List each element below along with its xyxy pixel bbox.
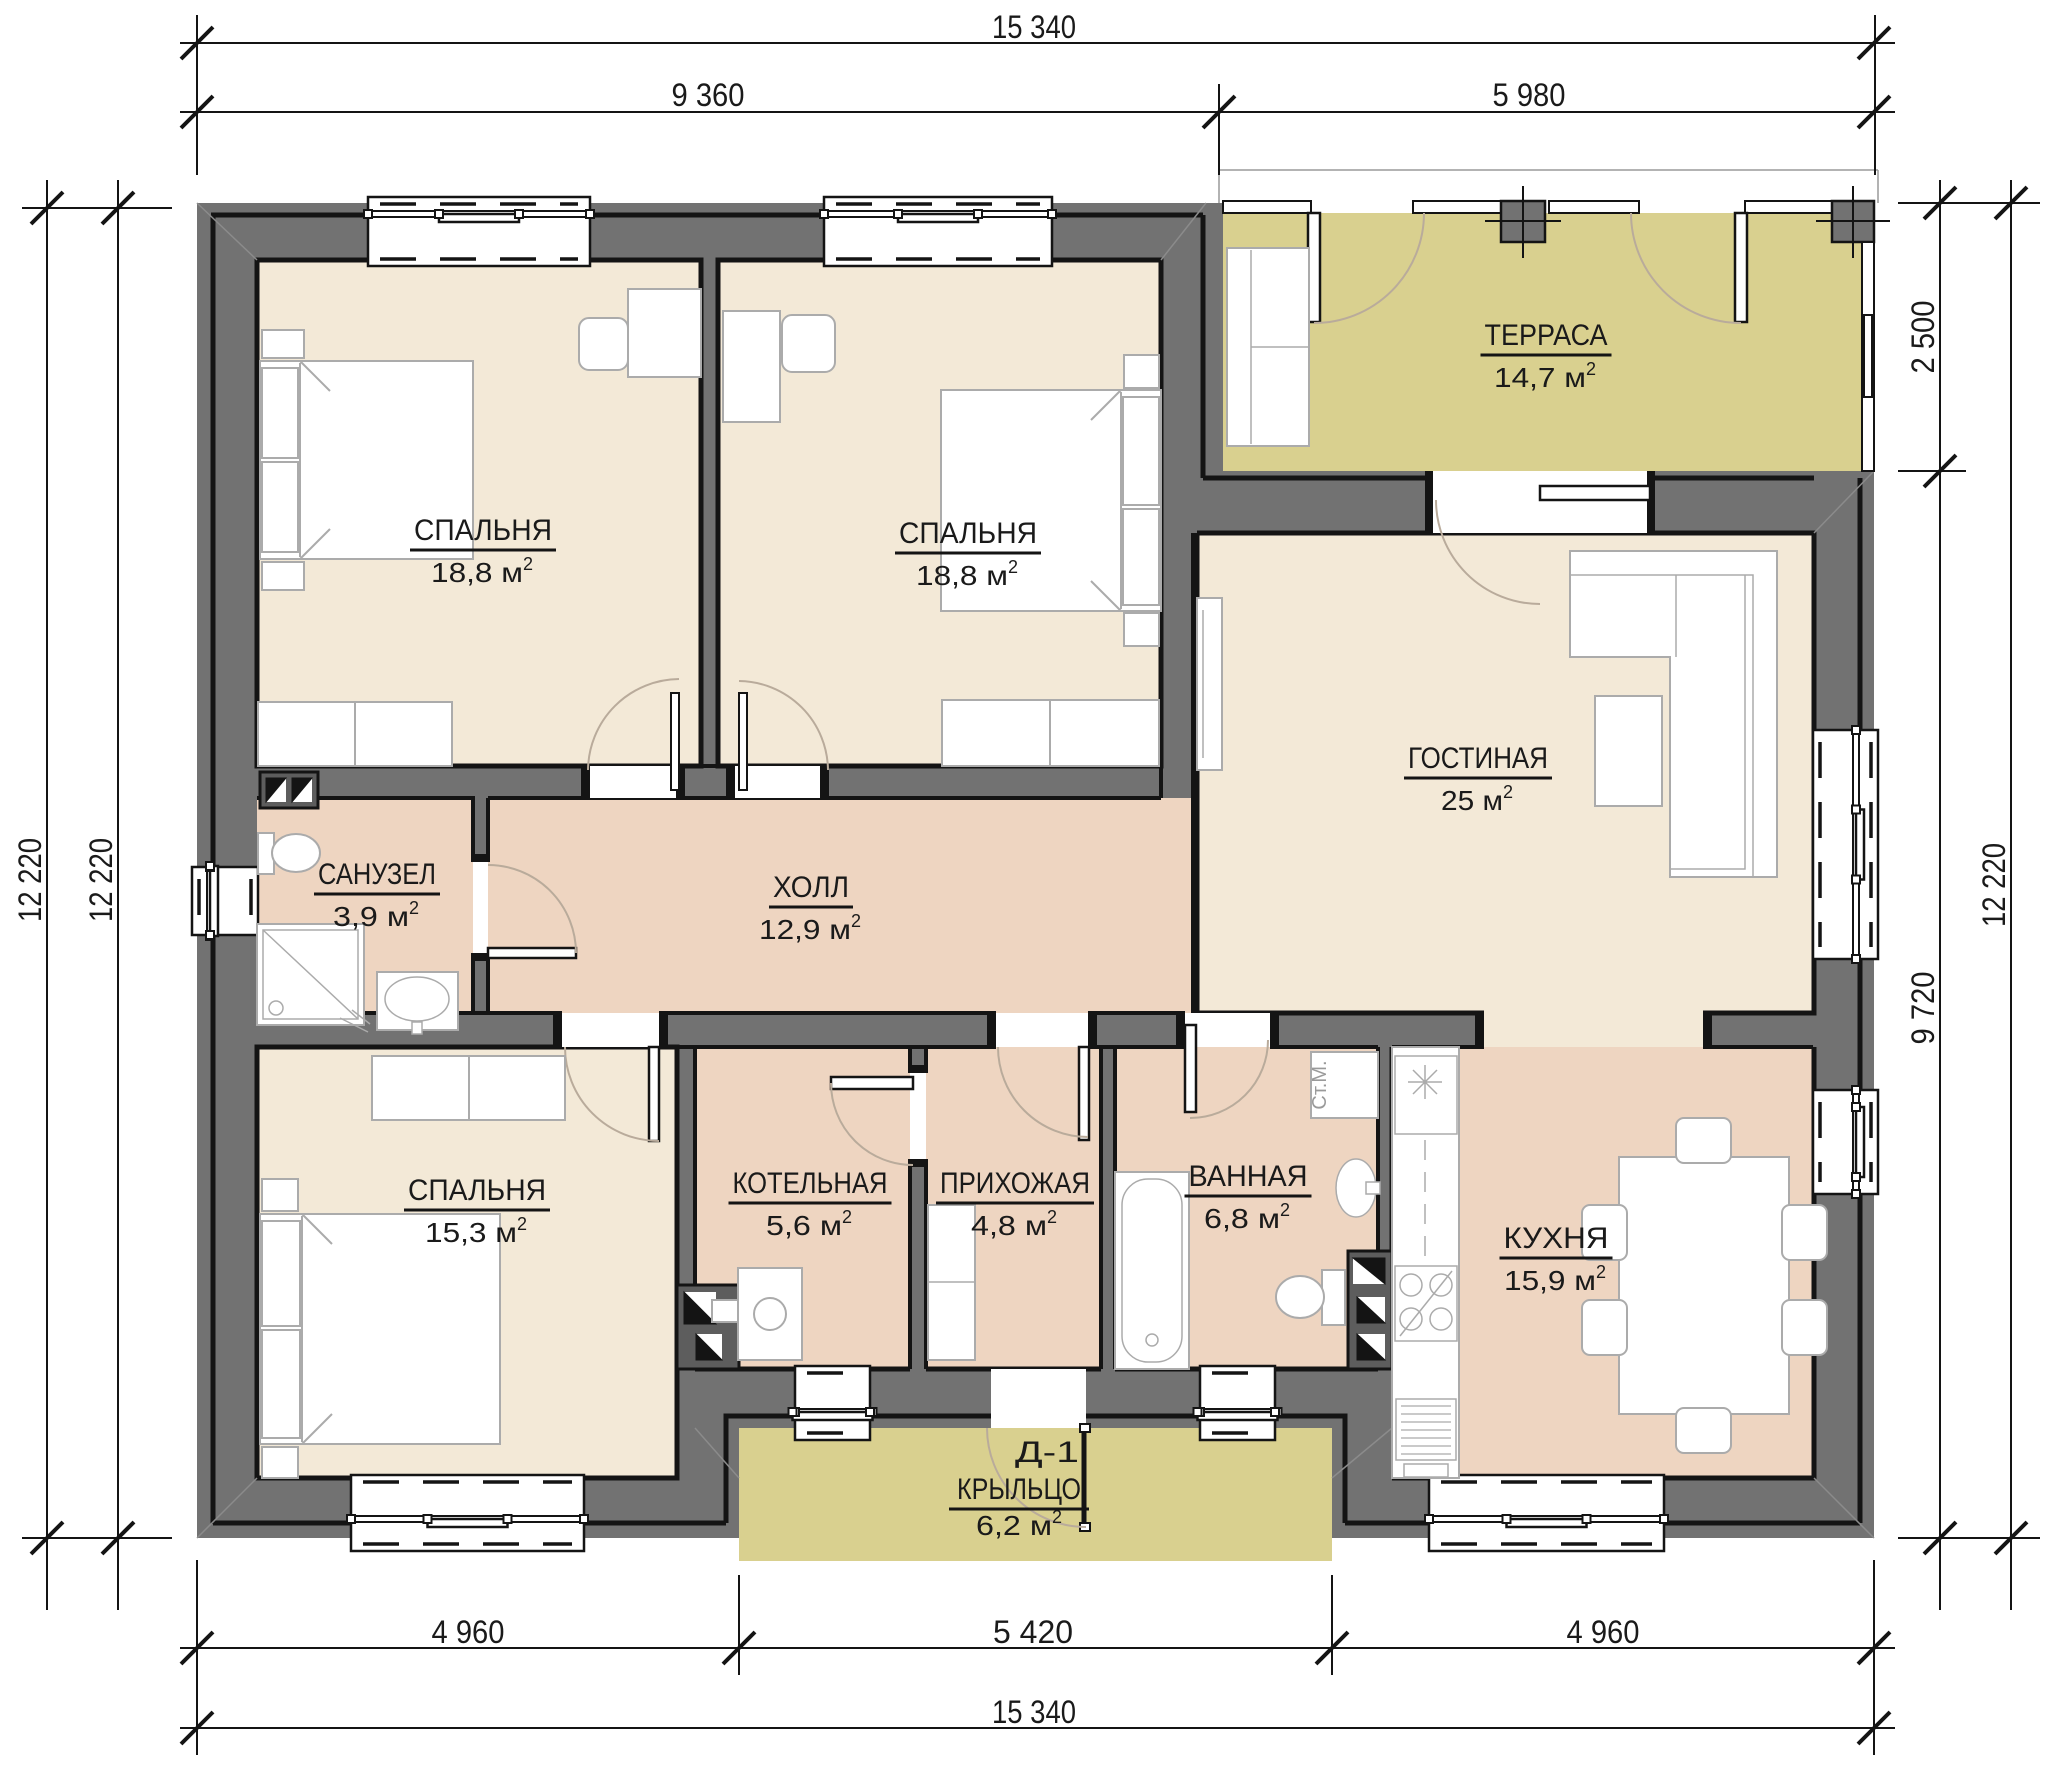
- svg-text:ГОСТИНАЯ: ГОСТИНАЯ: [1408, 742, 1548, 775]
- svg-text:6,8 м: 6,8 м: [1204, 1203, 1280, 1234]
- svg-text:12 220: 12 220: [1976, 843, 2012, 927]
- svg-text:ПРИХОЖАЯ: ПРИХОЖАЯ: [940, 1167, 1090, 1200]
- svg-text:КОТЕЛЬНАЯ: КОТЕЛЬНАЯ: [733, 1167, 888, 1200]
- svg-text:2: 2: [1047, 1207, 1057, 1227]
- svg-text:КРЫЛЬЦО: КРЫЛЬЦО: [957, 1473, 1081, 1506]
- svg-text:18,8 м: 18,8 м: [431, 557, 523, 588]
- svg-text:САНУЗЕЛ: САНУЗЕЛ: [318, 858, 436, 891]
- svg-text:СПАЛЬНЯ: СПАЛЬНЯ: [414, 514, 552, 547]
- svg-text:9 360: 9 360: [672, 77, 745, 113]
- svg-text:5 980: 5 980: [1493, 77, 1566, 113]
- svg-text:15 340: 15 340: [992, 9, 1076, 45]
- svg-text:2: 2: [851, 911, 861, 931]
- svg-text:СПАЛЬНЯ: СПАЛЬНЯ: [899, 517, 1037, 550]
- svg-text:4 960: 4 960: [1567, 1614, 1640, 1650]
- svg-text:2: 2: [1008, 557, 1018, 577]
- svg-text:Ст.М.: Ст.М.: [1309, 1060, 1331, 1109]
- svg-text:2: 2: [842, 1207, 852, 1227]
- svg-text:18,8 м: 18,8 м: [916, 560, 1008, 591]
- svg-text:15,3 м: 15,3 м: [425, 1217, 517, 1248]
- svg-text:12 220: 12 220: [12, 838, 48, 922]
- svg-text:9 720: 9 720: [1905, 972, 1941, 1045]
- svg-text:Д-1: Д-1: [1015, 1436, 1079, 1469]
- svg-text:6,2 м: 6,2 м: [976, 1510, 1052, 1541]
- svg-text:СПАЛЬНЯ: СПАЛЬНЯ: [408, 1174, 546, 1207]
- svg-text:2: 2: [517, 1214, 527, 1234]
- svg-text:ХОЛЛ: ХОЛЛ: [773, 871, 849, 904]
- svg-text:2: 2: [1503, 782, 1513, 802]
- svg-text:12 220: 12 220: [83, 838, 119, 922]
- svg-text:25 м: 25 м: [1441, 785, 1503, 816]
- svg-text:12,9 м: 12,9 м: [759, 914, 851, 945]
- svg-text:2: 2: [523, 554, 533, 574]
- svg-text:2: 2: [1586, 359, 1596, 379]
- svg-text:2 500: 2 500: [1905, 301, 1941, 374]
- svg-text:4 960: 4 960: [432, 1614, 505, 1650]
- svg-text:ВАННАЯ: ВАННАЯ: [1189, 1160, 1308, 1193]
- svg-text:2: 2: [1596, 1262, 1606, 1282]
- svg-text:14,7 м: 14,7 м: [1494, 362, 1586, 393]
- svg-text:3,9 м: 3,9 м: [333, 901, 409, 932]
- svg-text:2: 2: [1280, 1200, 1290, 1220]
- svg-text:5 420: 5 420: [993, 1614, 1073, 1650]
- svg-text:15 340: 15 340: [992, 1694, 1076, 1730]
- svg-text:2: 2: [1052, 1507, 1062, 1527]
- svg-text:4,8 м: 4,8 м: [971, 1210, 1047, 1241]
- svg-text:КУХНЯ: КУХНЯ: [1504, 1222, 1609, 1255]
- svg-text:ТЕРРАСА: ТЕРРАСА: [1485, 319, 1608, 352]
- svg-text:5,6 м: 5,6 м: [766, 1210, 842, 1241]
- svg-text:2: 2: [409, 898, 419, 918]
- svg-text:15,9 м: 15,9 м: [1504, 1265, 1596, 1296]
